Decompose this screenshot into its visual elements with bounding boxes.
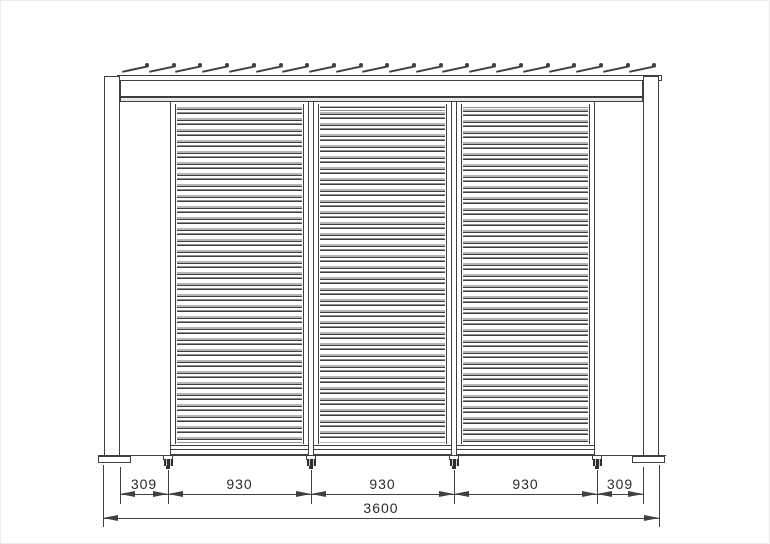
left-base-plate xyxy=(98,456,131,463)
dimension-label: 309 xyxy=(131,477,157,491)
extension-line xyxy=(454,470,455,504)
top-beam xyxy=(120,80,643,97)
louver-panel xyxy=(456,101,595,455)
roof-louver-blade xyxy=(175,62,203,75)
roof-louver-blade xyxy=(629,62,657,75)
panel-louver-slats xyxy=(320,106,445,443)
panel-bottom-rail xyxy=(314,445,451,450)
roof-louver-blade xyxy=(469,62,497,75)
foot-tip xyxy=(166,466,170,469)
dimension-arrow-right xyxy=(296,491,311,497)
drawing-sheet: 3099309309303093600 xyxy=(0,0,770,544)
foot-block xyxy=(593,459,602,466)
roof-louver-blade xyxy=(122,62,150,75)
roof-louver-blade xyxy=(576,62,604,75)
dimension-arrow-right xyxy=(582,491,597,497)
panel-frame xyxy=(318,104,447,444)
louver-panel xyxy=(313,101,452,455)
extension-line xyxy=(311,470,312,504)
dimension-label: 309 xyxy=(607,477,633,491)
roof-louver-blade xyxy=(523,62,551,75)
panel-bottom-rail xyxy=(171,445,308,450)
foot-block xyxy=(307,459,316,466)
foot-tip xyxy=(595,466,599,469)
extension-line xyxy=(659,465,660,527)
panel-louver-slats xyxy=(177,106,302,443)
foot-tip xyxy=(452,466,456,469)
roof-louver-blade xyxy=(442,62,470,75)
dimension-arrow-right xyxy=(644,515,659,521)
roof-louver-blade xyxy=(309,62,337,75)
ground-line xyxy=(98,455,666,456)
extension-line xyxy=(597,470,598,504)
roof-louver-blade xyxy=(256,62,284,75)
panel-frame xyxy=(175,104,304,444)
panel-bottom-rail xyxy=(457,445,594,450)
roof-louver-blade xyxy=(549,62,577,75)
right-post xyxy=(643,76,659,456)
louver-panel xyxy=(170,101,309,455)
right-base-plate xyxy=(632,456,665,463)
dimension-label: 930 xyxy=(226,477,252,491)
foot-block xyxy=(450,459,459,466)
roof-louver-blade xyxy=(229,62,257,75)
dimension-arrow-right xyxy=(439,491,454,497)
foot-tip xyxy=(309,466,313,469)
roof-louver-blade xyxy=(389,62,417,75)
left-post xyxy=(104,76,120,456)
dimension-arrow-left xyxy=(168,491,183,497)
panel-louver-slats xyxy=(463,106,588,443)
dimension-line xyxy=(120,494,643,495)
dimension-label: 930 xyxy=(512,477,538,491)
roof-louver-blade xyxy=(202,62,230,75)
foot-block xyxy=(164,459,173,466)
dimension-label: 930 xyxy=(369,477,395,491)
roof-louver-blade xyxy=(336,62,364,75)
roof-louver-blade xyxy=(496,62,524,75)
dimension-label-total: 3600 xyxy=(363,501,398,515)
dimension-arrow-left xyxy=(454,491,469,497)
roof-louver-blade xyxy=(362,62,390,75)
dimension-arrow-left xyxy=(103,515,118,521)
roof-louver-blade xyxy=(416,62,444,75)
extension-line xyxy=(120,467,121,504)
roof-louver-blade xyxy=(149,62,177,75)
extension-line xyxy=(643,467,644,504)
roof-louver-blade xyxy=(603,62,631,75)
roof-louver-blade xyxy=(282,62,310,75)
dimension-line-total xyxy=(103,518,659,519)
extension-line xyxy=(168,470,169,504)
dimension-arrow-left xyxy=(311,491,326,497)
panel-frame xyxy=(461,104,590,444)
